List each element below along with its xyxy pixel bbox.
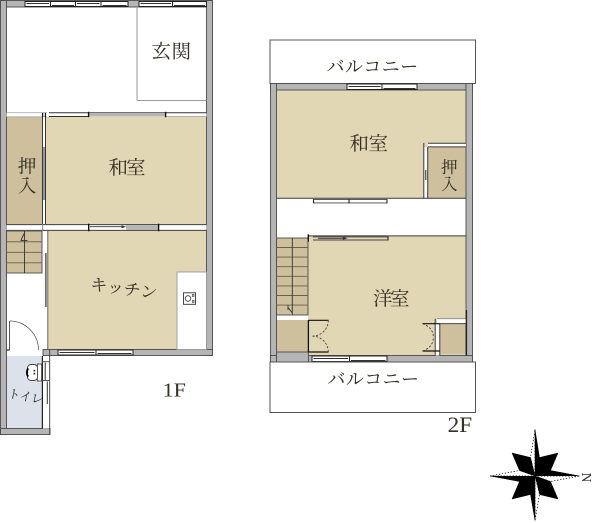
svg-text:N: N <box>579 473 594 483</box>
svg-text:1F: 1F <box>163 380 186 401</box>
svg-text:2F: 2F <box>448 412 473 437</box>
